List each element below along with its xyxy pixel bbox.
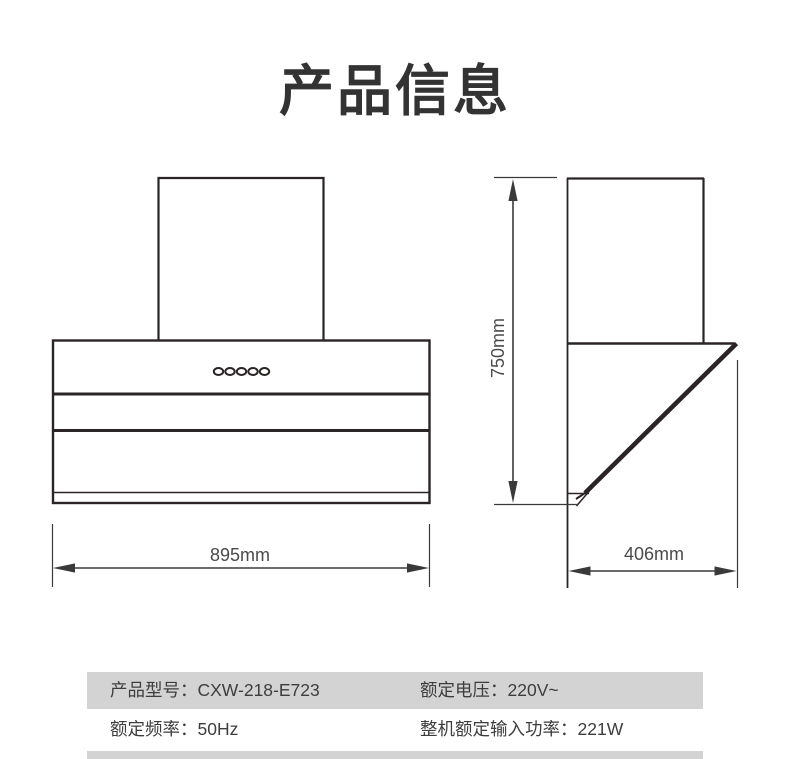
spec-cell-frequency: 额定频率：50Hz xyxy=(110,709,420,749)
spec-cell-model: 产品型号：CXW-218-E723 xyxy=(110,672,420,709)
arrow-up-icon xyxy=(508,179,517,201)
side-view-drawing xyxy=(567,178,738,588)
technical-drawing: 895mm 750mm xyxy=(0,140,790,600)
spec-row: 额定频率：50Hz 整机额定输入功率：221W xyxy=(87,709,703,749)
arrow-down-icon xyxy=(508,481,517,503)
front-body-outline xyxy=(53,341,430,504)
product-info-page: 产品信息 8 xyxy=(0,0,790,759)
page-title: 产品信息 xyxy=(0,46,790,126)
front-width-dimension: 895mm xyxy=(53,524,430,587)
spec-cell-power: 整机额定输入功率：221W xyxy=(420,709,703,749)
side-depth-dimension: 406mm xyxy=(569,544,737,576)
side-slanted-panel xyxy=(585,344,737,494)
front-view-drawing xyxy=(53,178,430,503)
spec-cell-voltage: 额定电压：220V~ xyxy=(420,672,703,709)
side-height-dimension: 750mm xyxy=(488,178,578,505)
front-chimney-outline xyxy=(159,178,324,340)
arrow-left-icon xyxy=(53,563,75,572)
spec-table: 产品型号：CXW-218-E723 额定电压：220V~ 额定频率：50Hz 整… xyxy=(87,672,703,749)
arrow-left-icon xyxy=(569,566,591,575)
arrow-right-icon xyxy=(407,563,429,572)
front-width-label: 895mm xyxy=(210,545,270,565)
spec-table-bottom-bar xyxy=(87,751,703,759)
side-height-label: 750mm xyxy=(488,318,508,378)
spec-row: 产品型号：CXW-218-E723 额定电压：220V~ xyxy=(87,672,703,709)
side-depth-label: 406mm xyxy=(624,544,684,564)
arrow-right-icon xyxy=(715,566,737,575)
